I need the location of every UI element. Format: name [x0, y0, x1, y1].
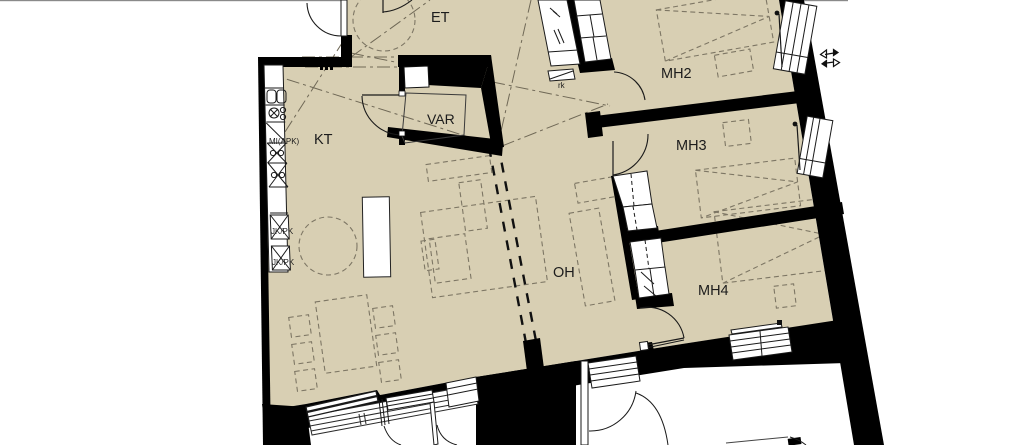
svg-text:MH2: MH2: [661, 66, 692, 82]
svg-text:rk: rk: [558, 81, 566, 90]
svg-text:MI(APK): MI(APK): [269, 137, 300, 146]
svg-text:OH: OH: [553, 265, 575, 281]
svg-text:ET: ET: [431, 10, 450, 26]
svg-text:MH4: MH4: [698, 283, 729, 299]
svg-text:MH3: MH3: [676, 138, 707, 154]
svg-text:JK/PK: JK/PK: [272, 258, 295, 267]
svg-text:VAR: VAR: [427, 111, 455, 127]
svg-text:JK/PK: JK/PK: [271, 227, 294, 236]
svg-text:KT: KT: [314, 132, 333, 148]
